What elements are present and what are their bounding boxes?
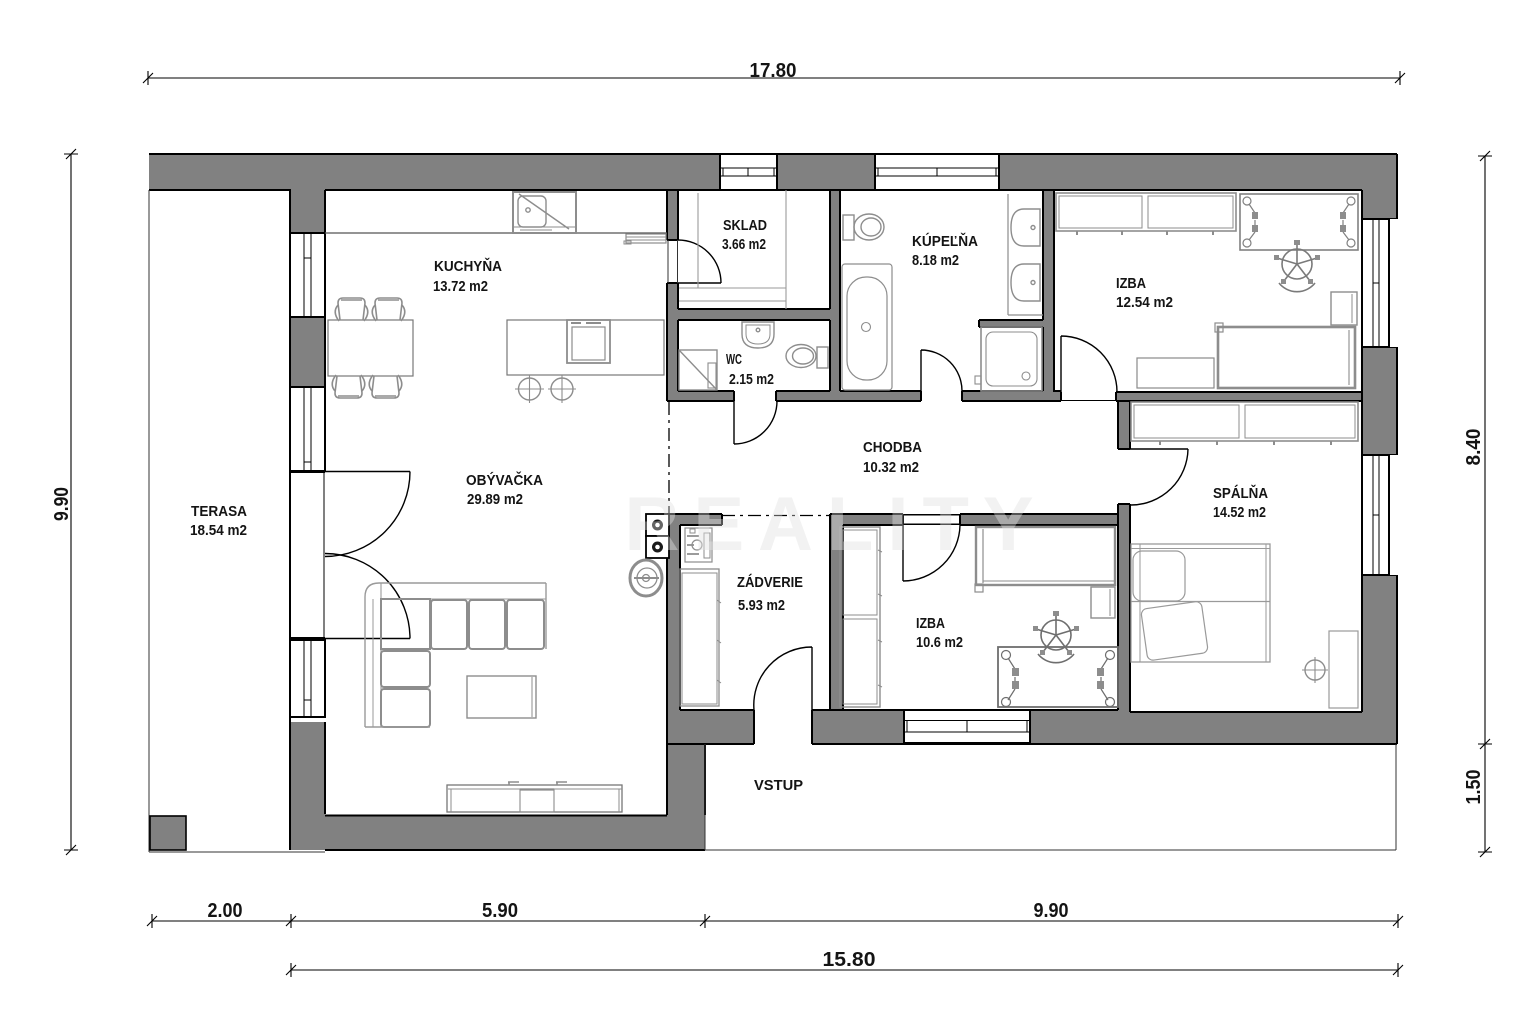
svg-text:29.89 m2: 29.89 m2 bbox=[467, 491, 523, 508]
svg-text:1.50: 1.50 bbox=[1463, 770, 1485, 805]
svg-text:18.54 m2: 18.54 m2 bbox=[190, 522, 247, 539]
svg-text:2.15 m2: 2.15 m2 bbox=[729, 371, 774, 388]
svg-text:IZBA: IZBA bbox=[916, 615, 945, 632]
svg-text:OBÝVAČKA: OBÝVAČKA bbox=[466, 471, 543, 489]
svg-text:13.72 m2: 13.72 m2 bbox=[433, 278, 488, 295]
svg-text:CHODBA: CHODBA bbox=[863, 439, 922, 456]
svg-text:5.93 m2: 5.93 m2 bbox=[738, 597, 785, 614]
svg-text:REALITY: REALITY bbox=[624, 482, 1047, 567]
svg-text:9.90: 9.90 bbox=[51, 487, 73, 521]
svg-text:9.90: 9.90 bbox=[1034, 900, 1069, 922]
svg-text:IZBA: IZBA bbox=[1116, 275, 1146, 292]
svg-text:KUCHYŇA: KUCHYŇA bbox=[434, 257, 502, 275]
svg-text:14.52 m2: 14.52 m2 bbox=[1213, 504, 1266, 521]
svg-text:KÚPEĽŇA: KÚPEĽŇA bbox=[912, 232, 978, 250]
svg-text:SPÁLŇA: SPÁLŇA bbox=[1213, 484, 1268, 502]
svg-text:TERASA: TERASA bbox=[191, 503, 247, 520]
svg-text:8.40: 8.40 bbox=[1463, 429, 1485, 466]
svg-text:12.54 m2: 12.54 m2 bbox=[1116, 294, 1173, 311]
svg-text:ZÁDVERIE: ZÁDVERIE bbox=[737, 574, 803, 591]
svg-text:10.6 m2: 10.6 m2 bbox=[916, 634, 963, 651]
svg-text:5.90: 5.90 bbox=[482, 900, 518, 922]
svg-text:3.66 m2: 3.66 m2 bbox=[722, 236, 766, 253]
svg-text:2.00: 2.00 bbox=[208, 900, 243, 922]
svg-text:17.80: 17.80 bbox=[750, 60, 797, 82]
svg-text:SKLAD: SKLAD bbox=[723, 217, 767, 234]
svg-text:VSTUP: VSTUP bbox=[754, 777, 803, 794]
svg-text:WC: WC bbox=[726, 351, 742, 368]
svg-text:8.18 m2: 8.18 m2 bbox=[912, 252, 959, 269]
svg-text:10.32 m2: 10.32 m2 bbox=[863, 459, 919, 476]
svg-text:15.80: 15.80 bbox=[823, 949, 876, 971]
